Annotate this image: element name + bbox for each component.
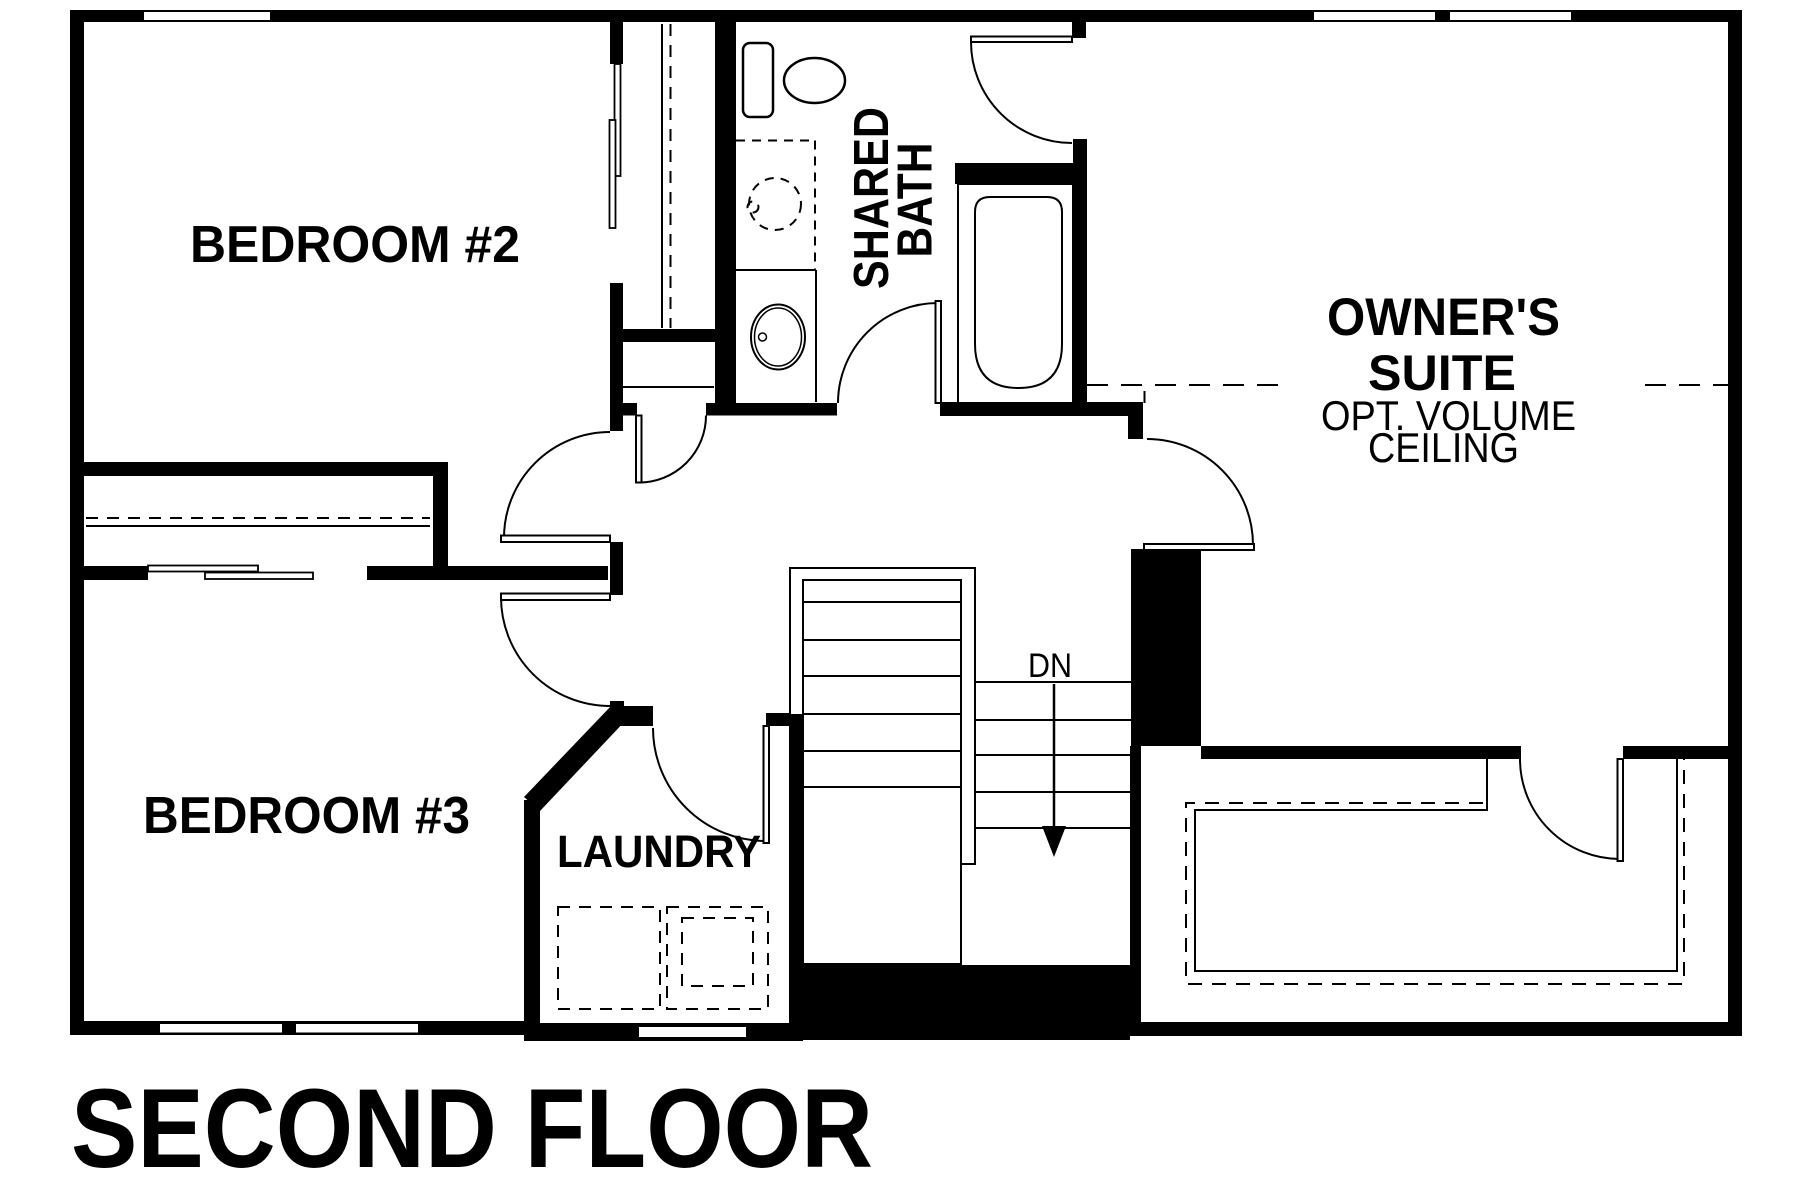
svg-text:BEDROOM #3: BEDROOM #3 [143, 787, 470, 845]
svg-text:OWNER'S: OWNER'S [1327, 288, 1560, 347]
svg-text:CEILING: CEILING [1368, 424, 1519, 471]
svg-text:BEDROOM #2: BEDROOM #2 [190, 216, 520, 274]
svg-text:LAUNDRY: LAUNDRY [557, 826, 761, 877]
svg-text:DN: DN [1028, 647, 1072, 685]
svg-text:BATH: BATH [889, 143, 943, 258]
svg-text:SECOND FLOOR: SECOND FLOOR [71, 1066, 873, 1191]
